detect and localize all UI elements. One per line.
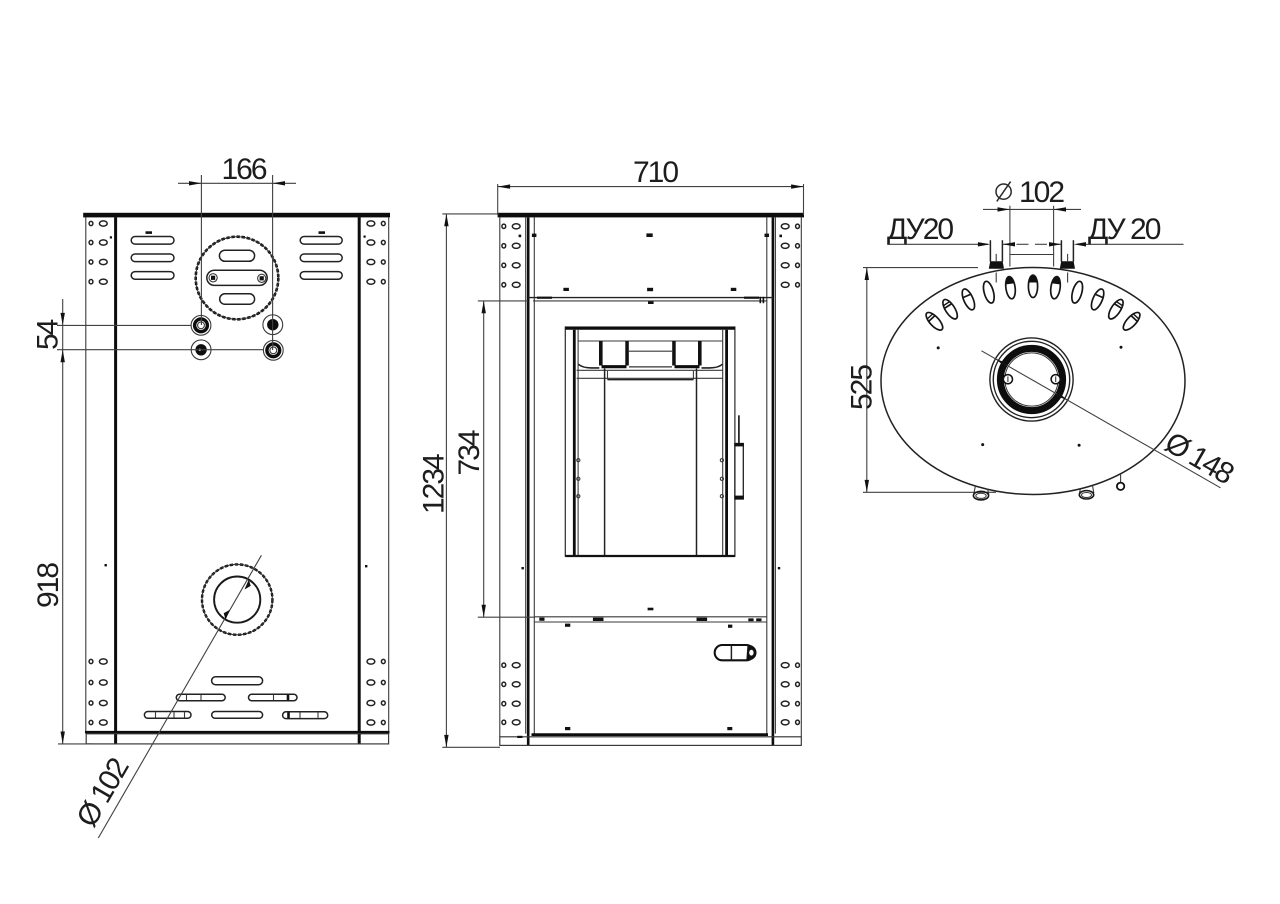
- svg-text:ДУ20: ДУ20: [887, 213, 953, 246]
- svg-text:102: 102: [1019, 176, 1064, 209]
- svg-text:710: 710: [633, 156, 678, 189]
- svg-text:ДУ 20: ДУ 20: [1088, 213, 1161, 246]
- svg-text:525: 525: [846, 365, 879, 410]
- svg-text:918: 918: [32, 563, 65, 608]
- svg-text:166: 166: [222, 153, 267, 186]
- svg-text:54: 54: [32, 319, 65, 350]
- svg-text:1234: 1234: [418, 454, 451, 514]
- svg-text:734: 734: [453, 430, 486, 475]
